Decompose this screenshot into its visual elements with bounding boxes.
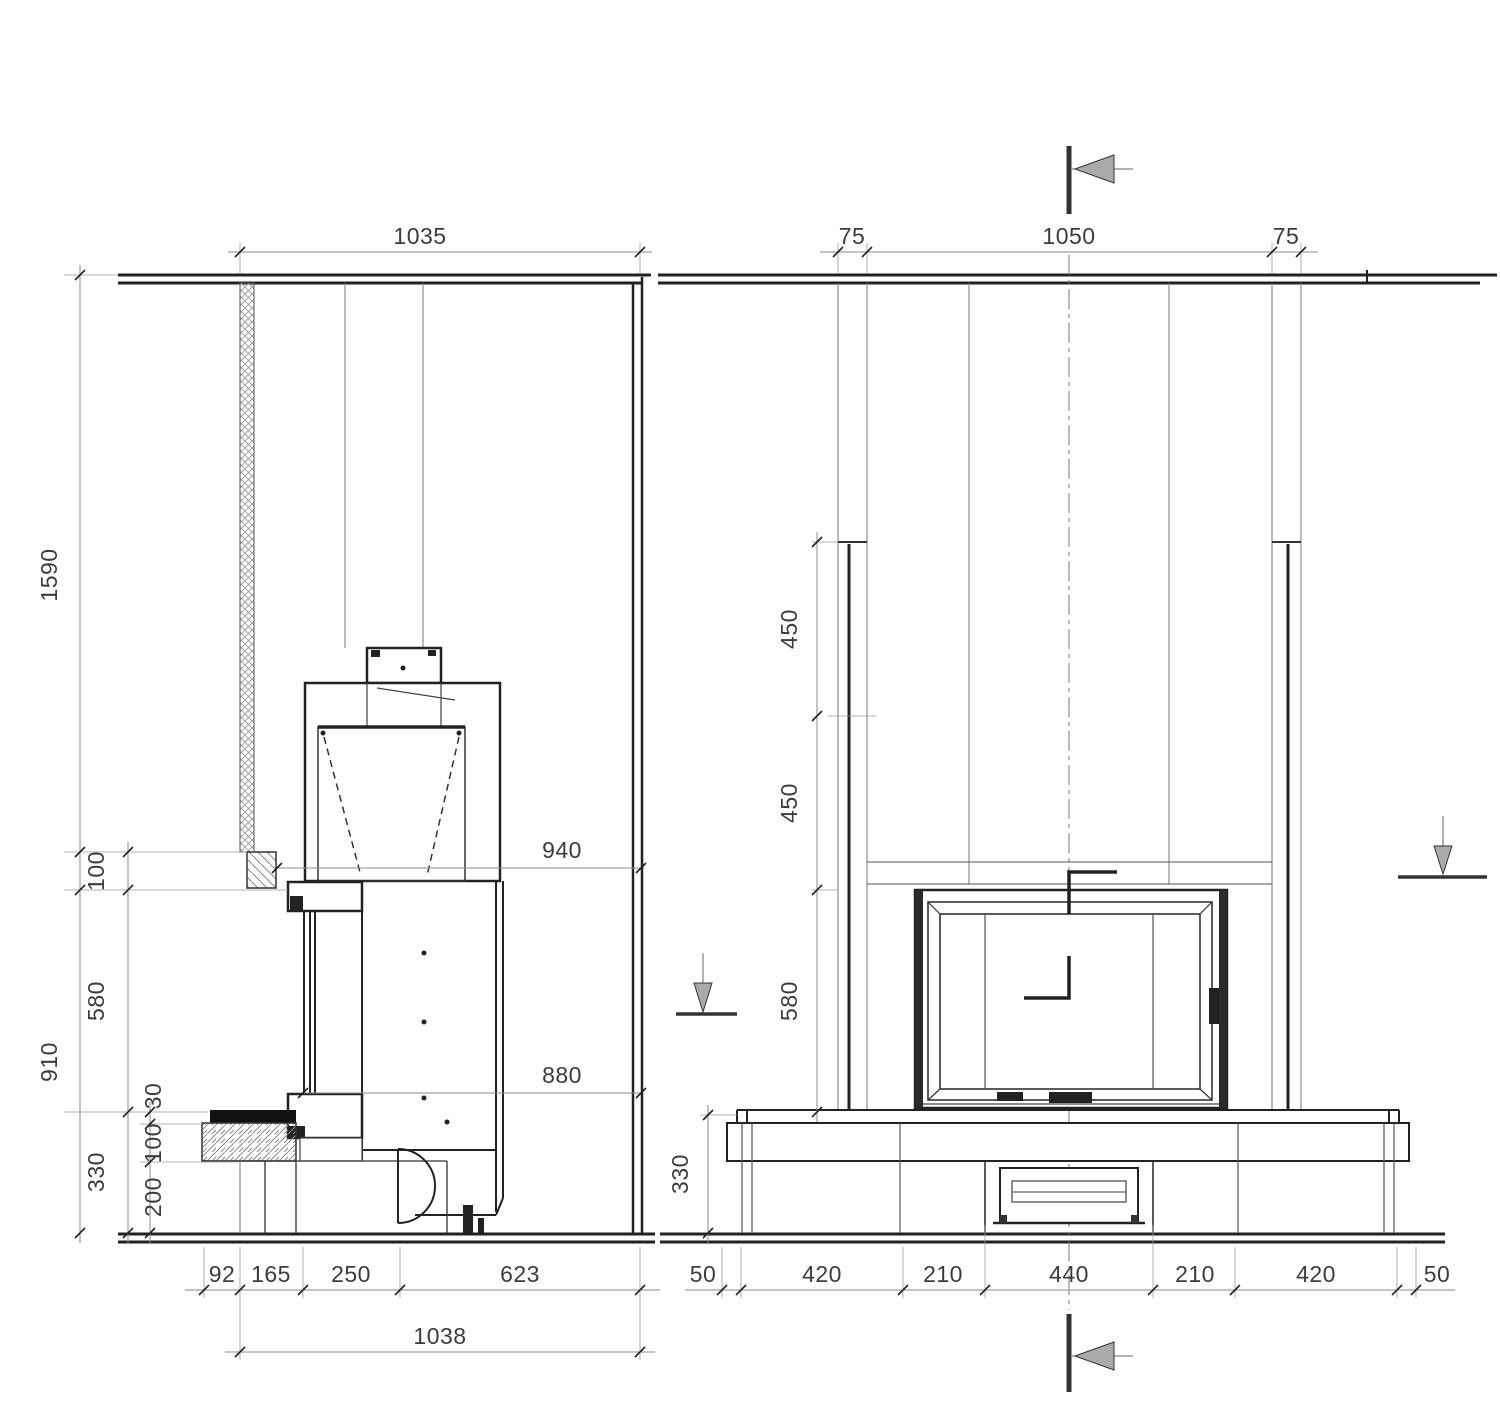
dim-75-right-label: 75 (1273, 223, 1300, 249)
dim-75-left-label: 75 (839, 223, 866, 249)
dim-250-label: 250 (331, 1261, 371, 1287)
dim-330-front-label: 330 (667, 1154, 693, 1194)
side-view: 1035 1590 910 100 580 330 30 100 200 940… (36, 223, 660, 1360)
dim-100-bench-label: 100 (140, 1123, 166, 1163)
level-marker-left (676, 953, 737, 1014)
firebox-body-outline (362, 881, 503, 1215)
dim-50-right-label: 50 (1424, 1261, 1451, 1287)
door-frame-outer (915, 890, 1227, 1108)
dim-1035-label: 1035 (393, 223, 446, 249)
grille-foot-right (1131, 1215, 1138, 1223)
flue-stub-dot (401, 666, 406, 671)
hearth-plate (210, 1110, 296, 1123)
dim-330-label: 330 (83, 1152, 109, 1192)
dim-440-label: 440 (1049, 1261, 1089, 1287)
dim-200-label: 200 (140, 1177, 166, 1217)
dim-910-label: 910 (36, 1042, 62, 1082)
body-rivet-4 (445, 1120, 450, 1125)
ceiling-line (118, 275, 651, 283)
dim-92-label: 92 (209, 1261, 236, 1287)
door-under-box (300, 1138, 362, 1161)
dome-rivet-left (321, 731, 326, 736)
vent-slot-left (997, 1092, 1023, 1101)
dim-623-label: 623 (500, 1261, 540, 1287)
dim-580-label: 580 (83, 981, 109, 1021)
front-ceiling-line (658, 275, 1497, 283)
dim-1038-label: 1038 (413, 1323, 466, 1349)
chimney-flue-hatch (240, 283, 254, 852)
body-rivet-2 (422, 1020, 427, 1025)
dim-210-right-label: 210 (1175, 1261, 1215, 1287)
flue-stub-mark-left (371, 650, 380, 657)
stove-foot (463, 1205, 473, 1233)
door-jamb-right (1219, 890, 1227, 1108)
dim-420-left-label: 420 (802, 1261, 842, 1287)
door-top-latch (290, 896, 303, 910)
door-handle (1209, 988, 1219, 1024)
stove-foot-2 (478, 1218, 484, 1233)
technical-drawing-page: 1035 1590 910 100 580 330 30 100 200 940… (0, 0, 1500, 1427)
dim-580-front-label: 580 (776, 981, 802, 1021)
level-marker-right (1398, 816, 1487, 877)
dim-420-right-label: 420 (1296, 1261, 1336, 1287)
body-rivet-3 (422, 1096, 427, 1101)
dim-165-label: 165 (251, 1261, 291, 1287)
dim-210-left-label: 210 (923, 1261, 963, 1287)
body-rivet-1 (422, 951, 427, 956)
dim-50-left-label: 50 (690, 1261, 717, 1287)
front-view: 75 1050 75 450 450 580 330 50 420 210 44… (658, 146, 1497, 1392)
air-grille-box (1000, 1168, 1138, 1223)
bench-hatch-block (202, 1123, 296, 1161)
door-glass (304, 911, 315, 1094)
dome-rivet-right (457, 731, 462, 736)
dim-30-label: 30 (140, 1083, 166, 1110)
dim-940-label: 940 (542, 837, 582, 863)
stove-casing (305, 683, 500, 881)
door-jamb-left (915, 890, 923, 1108)
dim-880-label: 880 (542, 1062, 582, 1088)
front-floor-line (660, 1234, 1445, 1242)
dim-100-flue-label: 100 (83, 851, 109, 891)
plinth-lines (202, 1161, 447, 1233)
flue-axis-lines (345, 283, 423, 648)
dim-450-upper-label: 450 (776, 609, 802, 649)
convection-arc (398, 1149, 435, 1223)
vent-slot-center (1049, 1092, 1092, 1103)
bench-top-slab (737, 1110, 1399, 1123)
dim-450-mid-label: 450 (776, 783, 802, 823)
flue-stub-mark-right (428, 650, 436, 656)
flue-connector-block (247, 852, 276, 888)
fireplace-installation-drawing: 1035 1590 910 100 580 330 30 100 200 940… (0, 0, 1500, 1427)
grille-foot-left (1000, 1215, 1007, 1223)
dim-1050-label: 1050 (1042, 223, 1095, 249)
floor-line (118, 1234, 655, 1242)
right-wall-line (633, 277, 642, 1233)
bench-body (727, 1123, 1409, 1161)
flow-arrow-top (1069, 146, 1133, 214)
left-column-lines (838, 283, 867, 1110)
flow-arrow-bottom (1069, 1314, 1133, 1392)
dim-1590-label: 1590 (36, 548, 62, 601)
